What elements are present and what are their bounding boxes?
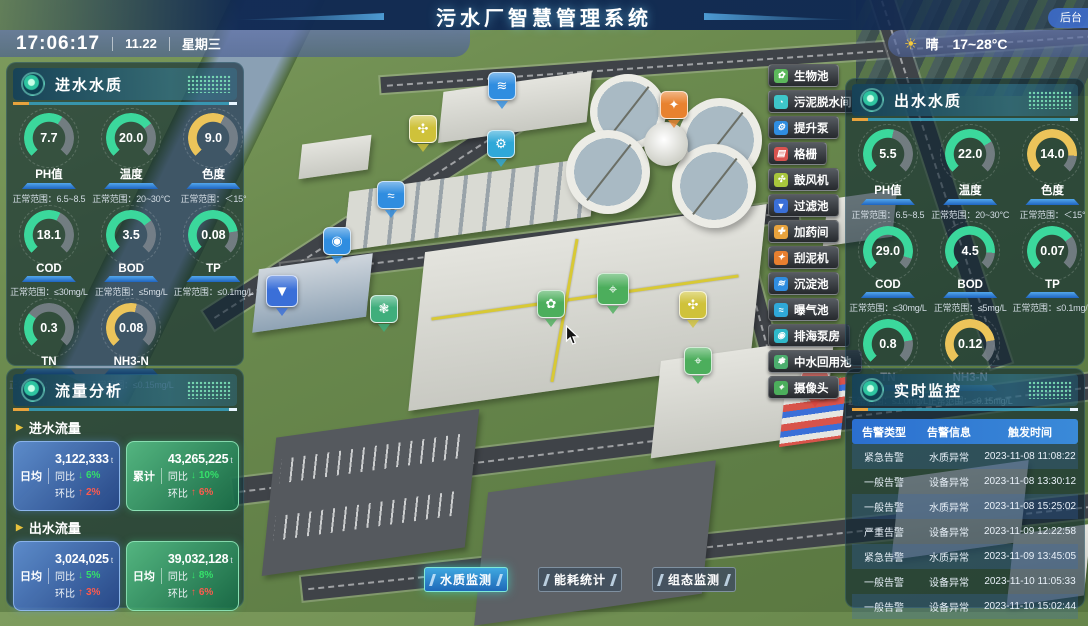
gauge-value: 0.3 [24,303,74,353]
trend-up-icon: ↑ [78,487,83,498]
facility-button-aeration-pool[interactable]: ≈曝气池 [768,298,839,321]
stat-label: 日均 [20,568,49,584]
gauge-value: 0.08 [106,303,156,353]
gauge-ribbon [186,183,240,189]
flow-value: 3,122,333 [55,452,109,466]
flow-card-daily: 日均 3,122,333t 同比↓6% 环比↑2% [13,441,120,511]
gauge-tp: 0.07 TP 正常范围：≤0.1mg/L [1013,226,1088,314]
gauge-label: 色度 [1041,182,1064,198]
facility-button-camera[interactable]: ⌖摄像头 [768,376,839,399]
flow-card-total: 累计 43,265,225t 同比↓10% 环比↑6% [126,441,240,511]
col-alarm-info: 告警信息 [916,424,982,440]
panel-title: 实时监控 [894,380,962,401]
gauge-chroma: 9.0 色度 正常范围：＜15° [174,113,254,205]
outflow-quality-panel: 出水水质 5.5 PH值 正常范围：6.5~8.5 22.0 温度 正常范围：2… [845,78,1085,366]
panel-badge-icon [860,378,884,402]
dots-decoration [187,381,231,399]
clock-date: 11.22 [125,36,157,51]
panel-header: 出水水质 [852,84,1078,116]
gauge-ph: 7.7 PH值 正常范围：6.5~8.5 [9,113,89,205]
table-row[interactable]: 紧急告警水质异常2023-11-09 13:45:05 [852,544,1078,569]
weather-condition: 晴 [925,34,938,53]
arrow-icon: ▶ [16,422,23,433]
bio-icon: ✿ [546,296,557,312]
gauge-ribbon [861,199,915,205]
gauge-value: 14.0 [1027,129,1077,179]
gauge-range: 正常范围：20~30°C [931,208,1009,221]
flow-unit: t [111,456,113,465]
gauge-label: 温度 [959,182,982,198]
gauge-range: 正常范围：6.5~8.5 [851,208,924,221]
section-label: 出水流量 [29,518,81,537]
map-building [299,135,372,180]
gauge-chroma: 14.0 色度 正常范围：＜15° [1013,129,1088,221]
funnel-icon: ▼ [275,283,290,300]
map-marker-lift-pump[interactable]: ⚙ [487,130,515,158]
yoy-label: 同比 [168,568,188,583]
gauge-temp: 20.0 温度 正常范围：20~30°C [89,113,174,205]
mom-label: 环比 [55,485,75,500]
facility-button-dosing-room[interactable]: ✚加药间 [768,220,839,243]
yoy-label: 同比 [168,468,188,483]
clock-weekday: 星期三 [182,34,221,53]
gauge-ribbon [22,183,76,189]
section-label: 进水流量 [29,418,81,437]
map-clarifier-tank [672,144,756,228]
table-row[interactable]: 一般告警设备异常2023-11-10 15:02:44 [852,594,1078,619]
reuse-icon: ❃ [379,301,390,317]
facility-button-bio-pool[interactable]: ✿生物池 [768,64,839,87]
map-clarifier-tank [566,130,650,214]
sea-pump-icon: ◉ [774,329,788,343]
gauge-value: 5.5 [863,129,913,179]
gauge-value: 20.0 [106,113,156,163]
table-row[interactable]: 一般告警设备异常2023-11-10 11:05:33 [852,569,1078,594]
dots-decoration [187,75,231,93]
mud-scraper-icon: ✦ [669,97,680,113]
funnel-icon: ▼ [774,199,788,213]
gauge-value: 22.0 [945,129,995,179]
flow-unit: t [111,556,113,565]
pump-icon: ◉ [331,233,342,249]
panel-badge-icon [21,72,45,96]
panel-underline [13,408,237,411]
gauge-value: 7.7 [24,113,74,163]
flow-analysis-panel: 流量分析 ▶ 进水流量 日均 3,122,333t 同比↓6% 环比↑2% 累计… [6,368,244,608]
dots-decoration [1028,91,1072,109]
gauge-value: 18.1 [24,210,74,260]
trend-up-icon: ↑ [191,487,196,498]
gauge-ribbon [1025,199,1079,205]
mom-value: 6% [199,587,213,598]
settling-icon: ≋ [774,277,788,291]
panel-title: 进水水质 [55,74,123,95]
weather-bar: ☀ 晴 17~28°C [888,30,1088,57]
tab-water-quality-monitor[interactable]: 水质监测 [424,567,508,592]
table-row[interactable]: 一般告警水质异常2023-11-08 15:25:02 [852,494,1078,519]
gauge-label: PH值 [35,166,62,182]
yoy-label: 同比 [55,568,75,583]
panel-title: 流量分析 [55,380,123,401]
reuse-icon: ❃ [774,355,788,369]
gauge-cod: 29.0 COD 正常范围：≤30mg/L [848,226,928,314]
inflow-flow-label: ▶ 进水流量 [16,418,234,437]
camera-icon: ⌖ [774,381,788,395]
sludge-icon: ◔ [774,95,788,109]
facility-button-grille[interactable]: ▤格栅 [768,142,827,165]
facility-button-filter-pool[interactable]: ▼过滤池 [768,194,839,217]
gauge-ribbon [861,292,915,298]
panel-underline [852,408,1078,411]
mom-label: 环比 [55,585,75,600]
grille-icon: ▤ [774,147,788,161]
divider [169,37,170,51]
mom-value: 3% [86,587,100,598]
gauge-ribbon [1025,292,1079,298]
alarm-table-body: 紧急告警水质异常2023-11-08 11:08:22 一般告警设备异常2023… [846,444,1084,619]
flow-value: 3,024,025 [55,552,109,566]
gauge-range: 正常范围：≤5mg/L [95,285,168,298]
table-row[interactable]: 严重告警设备异常2023-11-09 12:22:58 [852,519,1078,544]
map-marker-pump-house[interactable]: ◉ [323,227,351,255]
gauge-ribbon [104,276,158,282]
gauge-ph: 5.5 PH值 正常范围：6.5~8.5 [848,129,928,221]
fan-icon: ✣ [774,173,788,187]
map-yard [474,460,716,625]
flow-card-daily-2: 日均 39,032,128t 同比↓8% 环比↑6% [126,541,240,611]
yoy-value: 5% [86,570,100,581]
flow-value: 39,032,128 [168,552,229,566]
panel-header: 实时监控 [852,374,1078,406]
gauge-value: 29.0 [863,226,913,276]
gauge-range: 正常范围：≤30mg/L [849,301,927,314]
gauge-ribbon [943,292,997,298]
gauge-value: 3.5 [106,210,156,260]
panel-header: 流量分析 [13,374,237,406]
arrow-icon: ▶ [16,522,23,533]
col-trigger-time: 触发时间 [982,424,1078,440]
trend-down-icon: ↓ [191,570,196,581]
facility-button-settling-pool[interactable]: ≋沉淀池 [768,272,839,295]
gauge-range: 正常范围：≤5mg/L [934,301,1007,314]
tab-configuration-monitor[interactable]: 组态监测 [652,567,736,592]
gauge-value: 0.08 [188,210,238,260]
map-marker-mud-scraper[interactable]: ✦ [660,91,688,119]
divider [112,37,113,51]
stat-label: 累计 [133,468,162,484]
gauge-ribbon [22,276,76,282]
header-bar: 污水厂智慧管理系统 [0,0,1088,30]
table-row[interactable]: 一般告警设备异常2023-11-08 13:30:12 [852,469,1078,494]
gauge-ribbon [104,183,158,189]
gauge-range: 正常范围：≤30mg/L [10,285,88,298]
camera-icon: ⌖ [609,281,617,298]
gauge-tp: 0.08 TP 正常范围：≤0.1mg/L [174,210,254,298]
map-marker-water-reuse[interactable]: ❃ [370,295,398,323]
mom-label: 环比 [168,485,188,500]
gauge-cod: 18.1 COD 正常范围：≤30mg/L [9,210,89,298]
trend-down-icon: ↓ [78,570,83,581]
panel-badge-icon [21,378,45,402]
dots-decoration [1028,381,1072,399]
gauge-ribbon [943,199,997,205]
gauge-range: 正常范围：≤0.1mg/L [174,285,254,298]
gauge-value: 0.07 [1027,226,1077,276]
panel-badge-icon [860,88,884,112]
map-marker-bio-pool[interactable]: ✿ [537,290,565,318]
yoy-value: 8% [199,570,213,581]
gauge-ribbon [186,276,240,282]
gauge-label: PH值 [874,182,901,198]
outflow-flow-label: ▶ 出水流量 [16,518,234,537]
inflow-flow-cards: 日均 3,122,333t 同比↓6% 环比↑2% 累计 43,265,225t… [13,441,237,511]
gauge-grid: 7.7 PH值 正常范围：6.5~8.5 20.0 温度 正常范围：20~30°… [7,105,243,391]
gauge-value: 0.12 [945,319,995,369]
map-marker-aeration-pool[interactable]: ≈ [377,181,405,209]
table-row[interactable]: 紧急告警水质异常2023-11-08 11:08:22 [852,444,1078,469]
weather-temp-range: 17~28°C [952,36,1007,52]
aeration-icon: ≈ [774,303,788,317]
facility-button-lift-pump[interactable]: ⚙提升泵 [768,116,839,139]
outflow-flow-cards: 日均 3,024,025t 同比↓5% 环比↑3% 日均 39,032,128t… [13,541,237,611]
map-marker-blower-2[interactable]: ✣ [679,291,707,319]
parking-stripes [273,490,463,541]
sun-icon: ☀ [904,35,917,53]
gauge-range: 正常范围：≤0.1mg/L [1013,301,1088,314]
map-marker-camera-2[interactable]: ⌖ [684,347,712,375]
settling-pool-icon: ≋ [497,78,508,94]
trend-up-icon: ↑ [191,587,196,598]
clock-bar: 17:06:17 11.22 星期三 [0,30,470,57]
alarm-table-header: 告警类型 告警信息 触发时间 [852,419,1078,444]
gauge-bod: 3.5 BOD 正常范围：≤5mg/L [89,210,174,298]
map-marker-blower[interactable]: ✣ [409,115,437,143]
flow-value: 43,265,225 [168,452,229,466]
mom-value: 2% [86,487,100,498]
yoy-label: 同比 [55,468,75,483]
mom-value: 6% [199,487,213,498]
gauge-range: 正常范围：＜15° [181,192,247,205]
realtime-monitor-panel: 实时监控 告警类型 告警信息 触发时间 紧急告警水质异常2023-11-08 1… [845,368,1085,608]
gauge-value: 0.8 [863,319,913,369]
scraper-icon: ✦ [774,251,788,265]
col-alarm-type: 告警类型 [852,424,916,440]
parking-stripes [279,433,469,484]
gauge-value: 4.5 [945,226,995,276]
inflow-quality-panel: 进水水质 7.7 PH值 正常范围：6.5~8.5 20.0 温度 正常范围：2… [6,62,244,366]
facility-button-mud-scraper[interactable]: ✦刮泥机 [768,246,839,269]
gauge-value: 9.0 [188,113,238,163]
gauge-temp: 22.0 温度 正常范围：20~30°C [928,129,1013,221]
yoy-value: 6% [86,470,100,481]
map-parking-lot [262,409,480,576]
flow-card-daily: 日均 3,024,025t 同比↓5% 环比↑3% [13,541,120,611]
bottom-tab-bar: 水质监测 能耗统计 组态监测 [424,567,736,592]
page-title: 污水厂智慧管理系统 [0,2,1088,31]
map-marker-filter-pool[interactable]: ▼ [266,275,298,307]
gauge-label: 温度 [120,166,143,182]
trend-down-icon: ↓ [78,470,83,481]
stat-label: 日均 [133,568,162,584]
mouse-cursor [565,325,580,346]
pump-icon: ⚙ [774,121,788,135]
backend-button[interactable]: 后台 [1048,8,1088,28]
map-marker-settling-pool[interactable]: ≋ [488,72,516,100]
gauge-grid: 5.5 PH值 正常范围：6.5~8.5 22.0 温度 正常范围：20~30°… [846,121,1084,407]
panel-header: 进水水质 [13,68,237,100]
flow-unit: t [230,556,232,565]
map-center-hub [644,122,688,166]
bio-pool-icon: ✿ [774,69,788,83]
mom-label: 环比 [168,585,188,600]
flow-unit: t [230,456,232,465]
facility-button-sea-pump-house[interactable]: ◉排海泵房 [768,324,850,347]
trend-down-icon: ↓ [191,470,196,481]
fan-icon: ✣ [418,121,429,137]
gauge-range: 正常范围：6.5~8.5 [12,192,85,205]
gauge-bod: 4.5 BOD 正常范围：≤5mg/L [928,226,1013,314]
yoy-value: 10% [199,470,219,481]
map-marker-camera[interactable]: ⌖ [597,273,629,305]
dosing-icon: ✚ [774,225,788,239]
clock-time: 17:06:17 [16,33,100,55]
pump-icon: ⚙ [495,136,507,152]
panel-title: 出水水质 [894,90,962,111]
gauge-label: 色度 [202,166,225,182]
camera-icon: ⌖ [694,353,701,369]
trend-up-icon: ↑ [78,587,83,598]
stat-label: 日均 [20,468,49,484]
gauge-range: 正常范围：＜15° [1020,208,1086,221]
tab-energy-statistics[interactable]: 能耗统计 [538,567,622,592]
gauge-range: 正常范围：20~30°C [92,192,170,205]
fan-icon: ✣ [688,297,699,313]
facility-button-blower[interactable]: ✣鼓风机 [768,168,839,191]
aeration-icon: ≈ [387,188,394,203]
